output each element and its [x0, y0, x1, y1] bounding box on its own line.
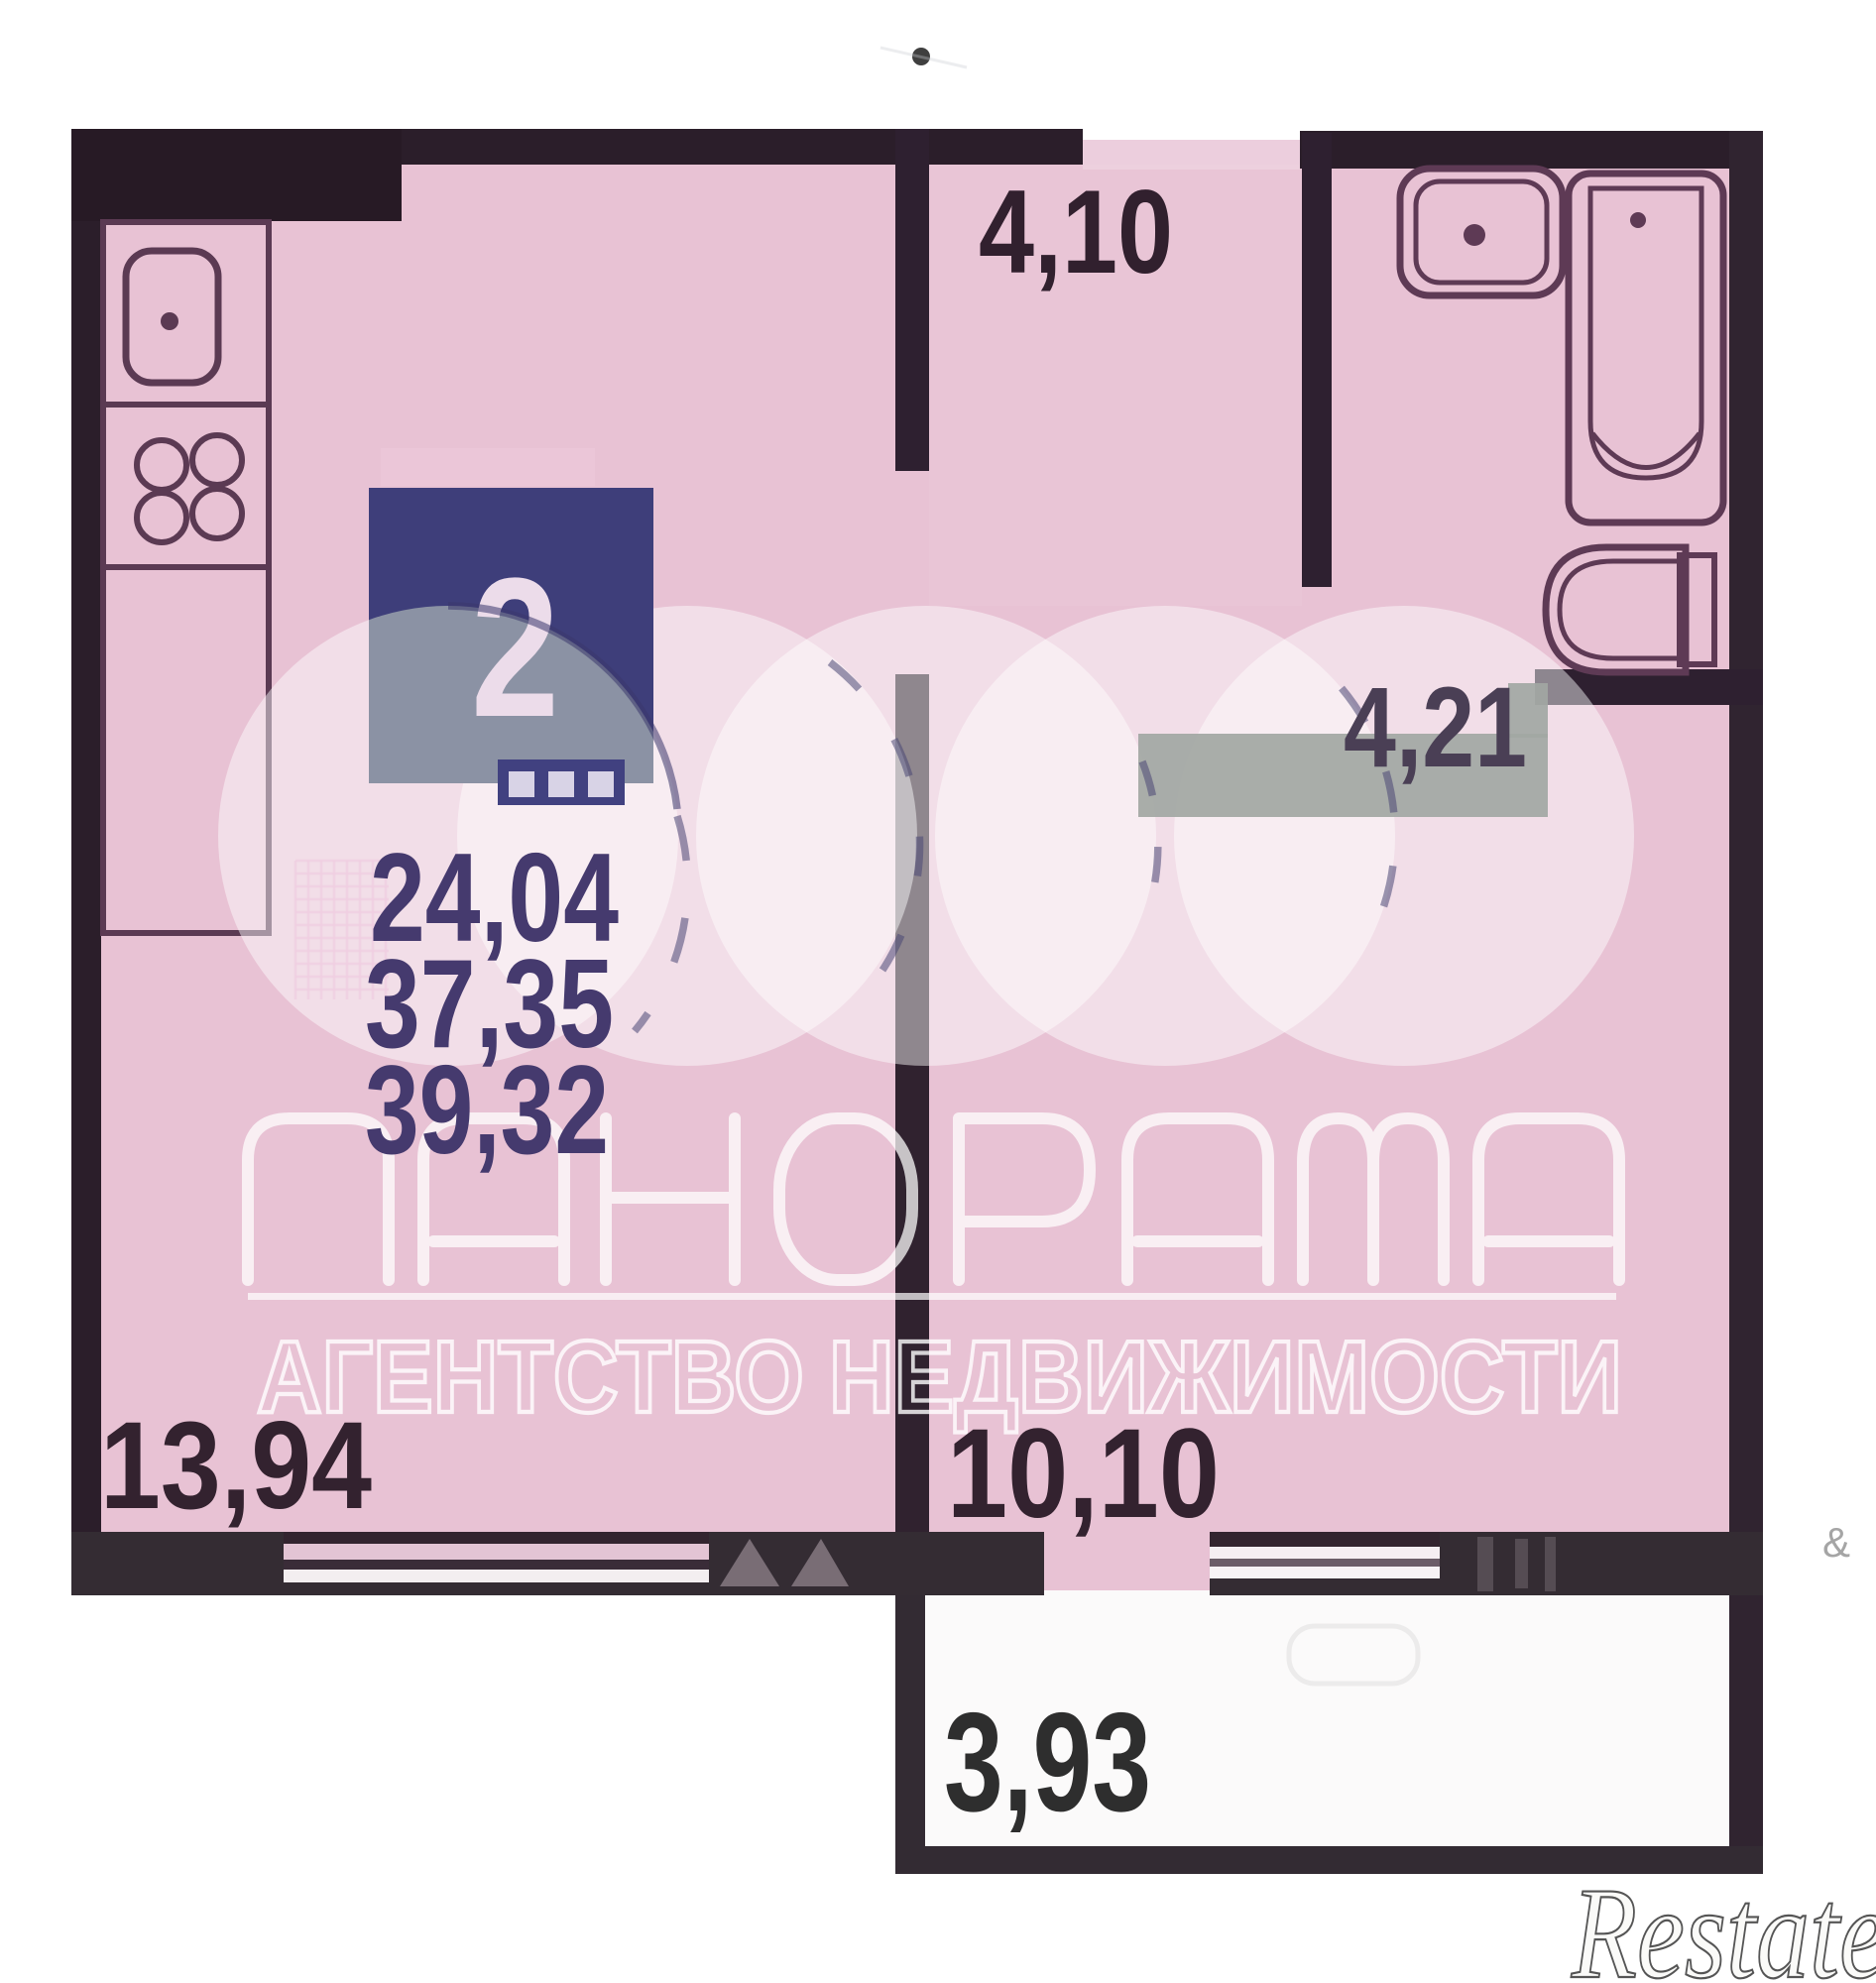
svg-text:Restate: Restate: [1571, 1860, 1876, 1983]
svg-text:39,32: 39,32: [365, 1039, 609, 1180]
svg-text:4,21: 4,21: [1344, 664, 1527, 791]
svg-text:13,94: 13,94: [100, 1397, 372, 1535]
svg-text:10,10: 10,10: [947, 1403, 1220, 1545]
svg-text:2: 2: [471, 537, 559, 758]
svg-text:4,10: 4,10: [979, 166, 1173, 298]
svg-text:3,93: 3,93: [944, 1684, 1151, 1841]
svg-text:АГЕНТСТВО НЕДВИЖИМОСТИ: АГЕНТСТВО НЕДВИЖИМОСТИ: [257, 1320, 1622, 1434]
svg-text:&: &: [1822, 1519, 1850, 1566]
